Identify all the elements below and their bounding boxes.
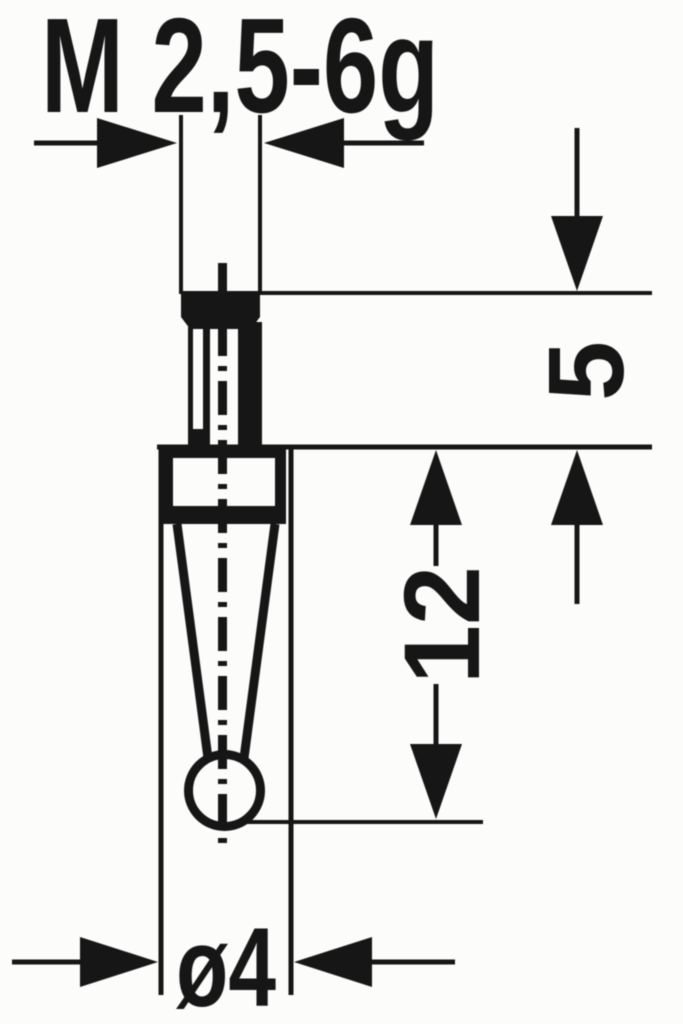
dimension-5: 5	[157, 128, 652, 604]
technical-drawing-page: M 2,5-6g 5 12	[0, 0, 683, 1024]
part-outline	[168, 263, 281, 853]
dimension-thread: M 2,5-6g	[34, 0, 439, 294]
dimension-dia4: ø4	[12, 449, 455, 1024]
thread-designation-label: M 2,5-6g	[41, 0, 439, 141]
arrowhead-5-up	[551, 450, 603, 525]
dim-dia4-label: ø4	[176, 905, 276, 1024]
thread-right-shading	[238, 322, 262, 446]
arrowhead-12-down	[410, 744, 462, 819]
arrowhead-dia-left	[80, 937, 158, 987]
arrowhead-5-down	[551, 216, 603, 291]
arrowhead-12-up	[410, 450, 462, 525]
cone-right-edge	[244, 524, 275, 758]
dim-12-label: 12	[381, 566, 502, 684]
contact-point-technical-drawing: M 2,5-6g 5 12	[0, 0, 683, 1024]
dim-5-label: 5	[525, 341, 646, 401]
arrowhead-dia-right	[294, 937, 372, 987]
cone-left-edge	[177, 524, 208, 758]
thread-runout-shading	[188, 429, 209, 446]
